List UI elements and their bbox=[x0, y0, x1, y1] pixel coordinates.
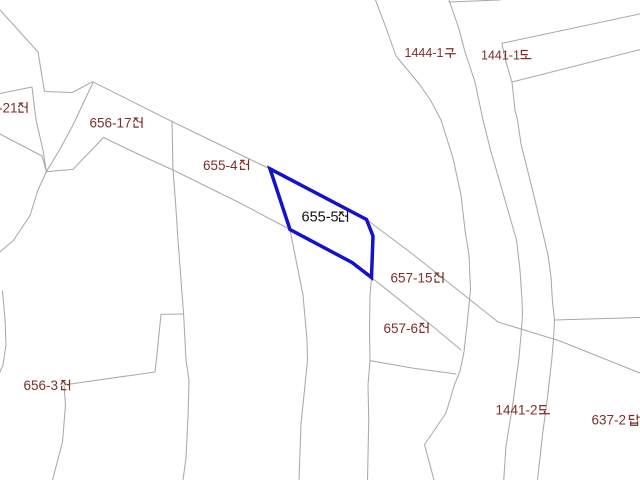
svg-text:657-6: 657-6 bbox=[384, 321, 419, 336]
svg-text:1441-2: 1441-2 bbox=[496, 403, 538, 418]
svg-text:656-17: 656-17 bbox=[90, 116, 132, 131]
svg-text:656-3: 656-3 bbox=[24, 378, 59, 393]
svg-text:-21: -21 bbox=[0, 101, 18, 116]
svg-text:655-5: 655-5 bbox=[302, 209, 339, 225]
svg-text:1444-1: 1444-1 bbox=[405, 46, 444, 60]
svg-text:657-15: 657-15 bbox=[391, 271, 433, 286]
svg-text:655-4: 655-4 bbox=[203, 158, 238, 173]
svg-text:637-2: 637-2 bbox=[592, 413, 627, 428]
svg-text:1441-1: 1441-1 bbox=[481, 49, 520, 63]
